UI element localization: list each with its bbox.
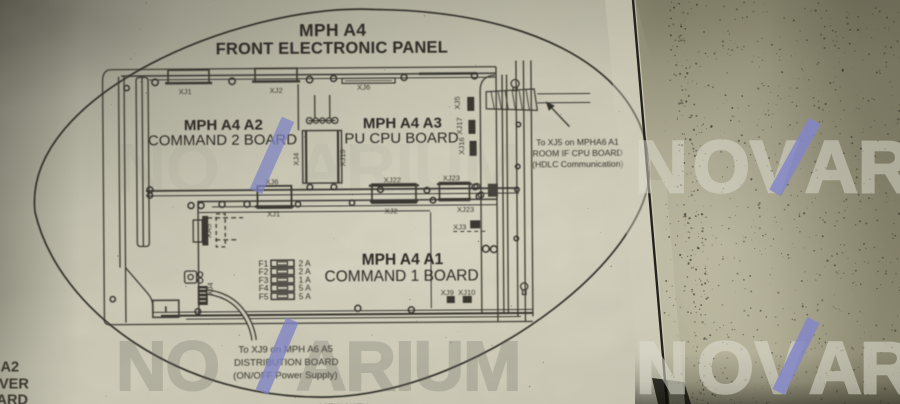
- svg-text:COMMAND 1 BOARD: COMMAND 1 BOARD: [324, 267, 478, 285]
- svg-text:N: N: [635, 127, 688, 208]
- svg-text:O: O: [693, 127, 750, 208]
- svg-text:ARD: ARD: [0, 393, 28, 404]
- svg-text:FRONT ELECTRONIC PANEL: FRONT ELECTRONIC PANEL: [216, 39, 448, 59]
- svg-text:XJ3: XJ3: [453, 222, 466, 231]
- svg-text:XJ1: XJ1: [267, 209, 280, 218]
- svg-text:XJ10: XJ10: [458, 288, 475, 297]
- svg-text:NO: NO: [116, 129, 219, 207]
- svg-text:XJ1: XJ1: [179, 87, 192, 96]
- svg-text:XJ6: XJ6: [357, 83, 370, 92]
- svg-text:R: R: [860, 328, 900, 404]
- svg-text:A2: A2: [1, 360, 20, 376]
- svg-text:A: A: [809, 328, 862, 404]
- svg-text:VER: VER: [0, 377, 29, 393]
- svg-text:XJ5: XJ5: [453, 96, 462, 109]
- svg-text:XA5: XA5: [204, 224, 213, 238]
- svg-text:XJ4: XJ4: [206, 282, 215, 295]
- svg-text:A: A: [805, 127, 858, 208]
- svg-text:ARIUM: ARIUM: [296, 327, 520, 404]
- svg-text:XJ2: XJ2: [385, 206, 398, 215]
- svg-text:NO: NO: [116, 327, 219, 404]
- svg-text:MPH A4 A1: MPH A4 A1: [362, 251, 444, 269]
- svg-text:5 A: 5 A: [299, 291, 312, 301]
- svg-text:R: R: [858, 127, 900, 208]
- svg-text:XJ2: XJ2: [270, 86, 283, 95]
- svg-text:XJ9: XJ9: [441, 288, 454, 297]
- svg-text:F5: F5: [259, 291, 269, 301]
- svg-text:(HDLC Communication): (HDLC Communication): [532, 159, 623, 170]
- svg-text:N: N: [636, 328, 689, 404]
- svg-text:ROOM IF CPU BOARD: ROOM IF CPU BOARD: [532, 148, 622, 159]
- svg-text:To XJ5 on MPHA6 A1: To XJ5 on MPHA6 A1: [536, 137, 619, 148]
- svg-text:O: O: [697, 328, 754, 404]
- svg-text:MPH A4: MPH A4: [299, 20, 366, 41]
- svg-text:ARIUM: ARIUM: [296, 129, 520, 207]
